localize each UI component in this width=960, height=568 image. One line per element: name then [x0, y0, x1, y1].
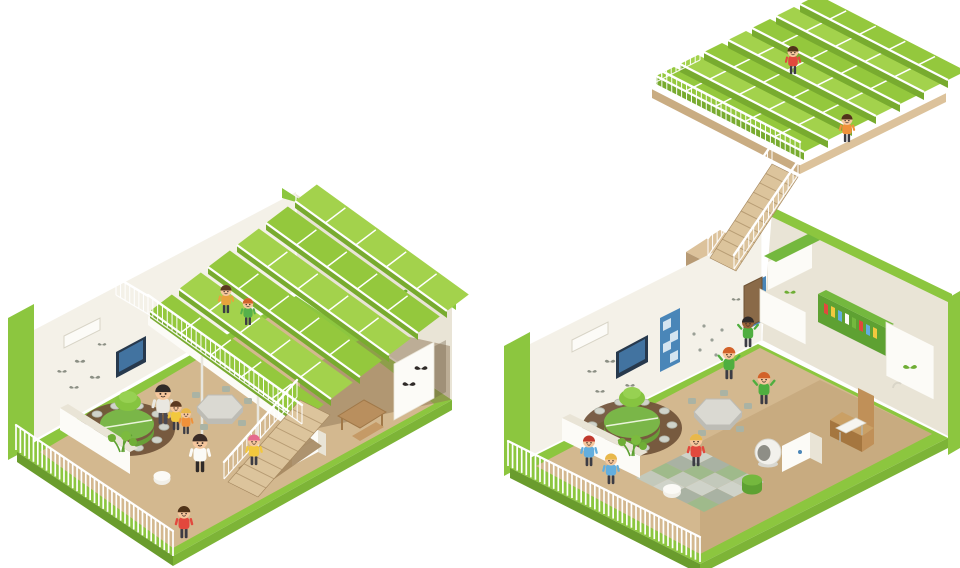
- illustration-canvas: [0, 0, 960, 568]
- ball-chair: [755, 439, 781, 468]
- right-scene: [504, 0, 960, 568]
- stool: [92, 411, 102, 417]
- climbing-panel-lower: [660, 308, 680, 372]
- stool: [667, 422, 677, 428]
- rooftop-planter-terraces: [656, 0, 960, 160]
- green-stool-cylinder: [742, 475, 762, 495]
- stool: [152, 437, 162, 443]
- left-scene: [8, 185, 469, 567]
- stool: [595, 408, 605, 414]
- rooftop-planters: [656, 0, 960, 160]
- stool: [659, 436, 669, 442]
- pouf: [154, 471, 171, 485]
- stool: [159, 424, 169, 430]
- right-wall-cut-face: [948, 291, 960, 455]
- kitchen-handle: [798, 450, 802, 454]
- pouf: [663, 484, 681, 498]
- stool: [659, 408, 669, 414]
- isometric-illustration: [0, 0, 960, 568]
